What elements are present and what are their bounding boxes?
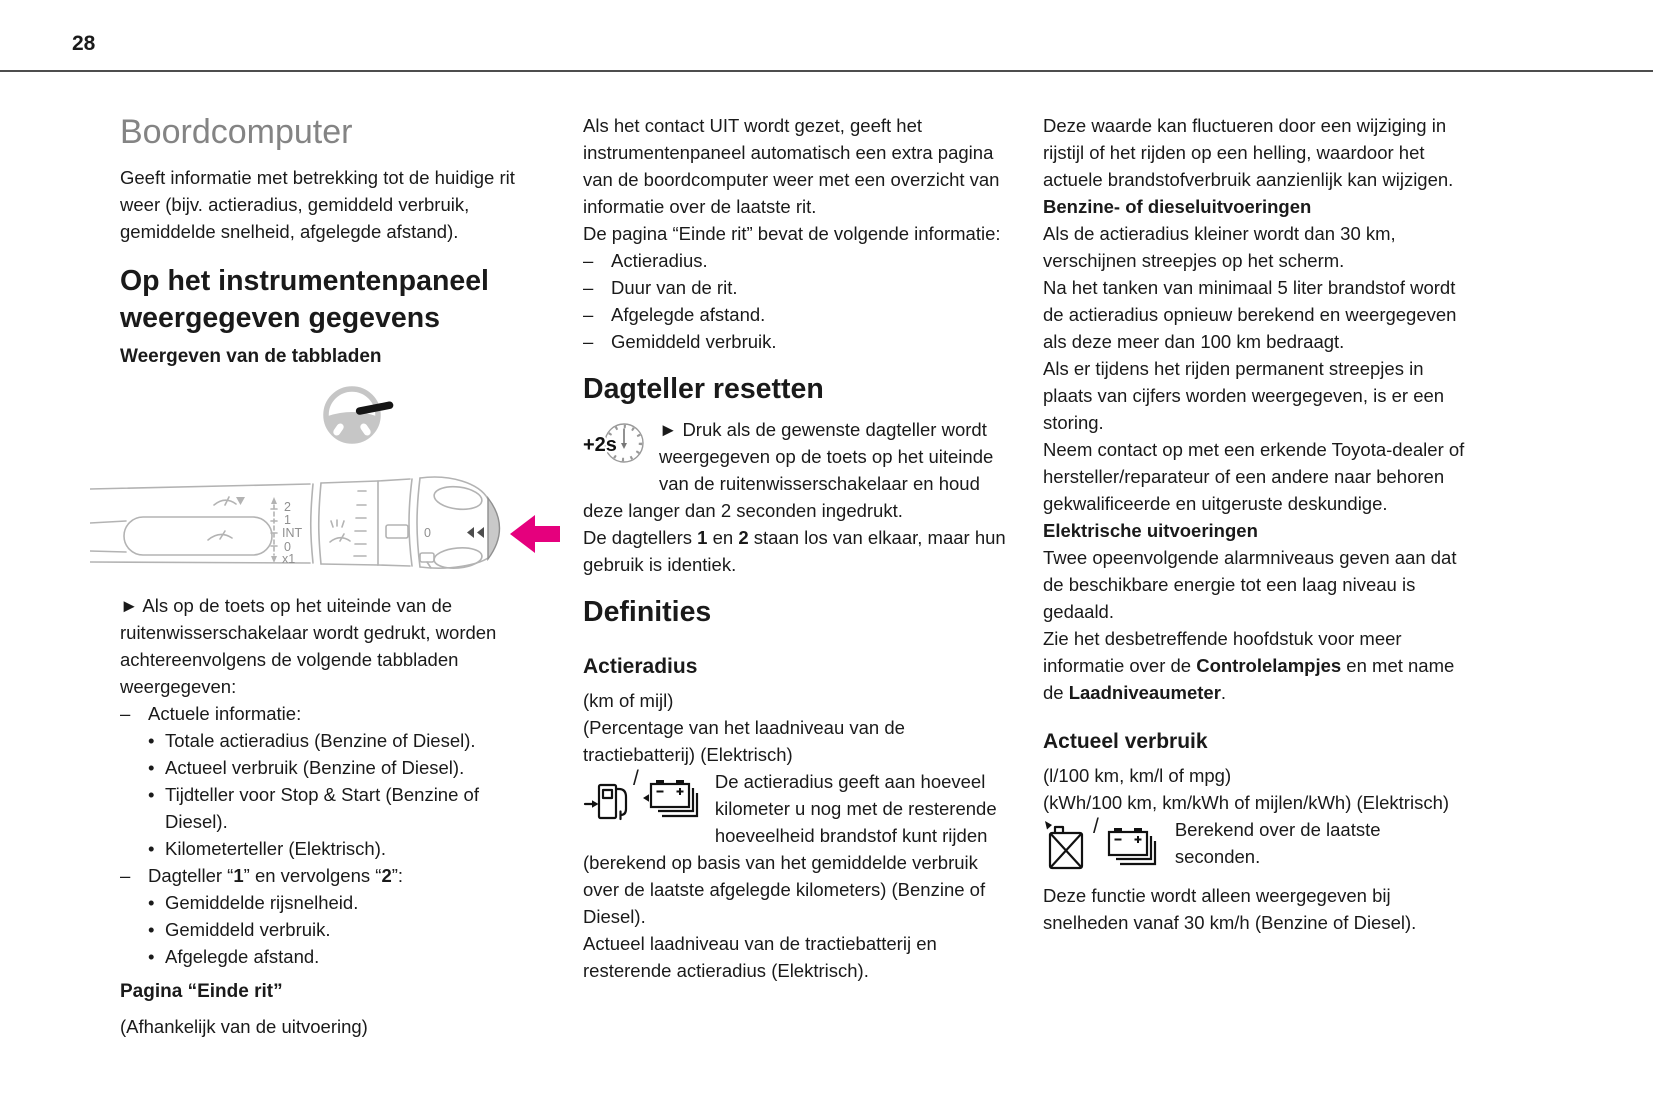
subheading-tabbladen: Weergeven van de tabbladen bbox=[120, 345, 542, 369]
double-left-arrow-icon bbox=[467, 527, 474, 538]
stalk-end-button bbox=[488, 498, 500, 559]
verbruik-unit1: (l/100 km, km/l of mpg) bbox=[1043, 762, 1471, 789]
dash-marker: – bbox=[120, 862, 148, 889]
traction-battery-icon bbox=[1103, 820, 1161, 868]
heading-dagteller-resetten: Dagteller resetten bbox=[583, 371, 1017, 408]
einde-rit-intro: De pagina “Einde rit” bevat de volgende … bbox=[583, 220, 1017, 247]
list-item: – Gemiddeld verbruik. bbox=[583, 328, 1017, 355]
chapter-title: Boordcomputer bbox=[120, 112, 542, 152]
intro-paragraph: Geeft informatie met betrekking tot de h… bbox=[120, 164, 542, 245]
dash-marker: – bbox=[583, 328, 611, 355]
fluctuation-paragraph: Deze waarde kan fluctueren door een wijz… bbox=[1043, 112, 1471, 193]
einde-rit-note: (Afhankelijk van de uitvoering) bbox=[120, 1013, 542, 1040]
subheading-benzine-diesel: Benzine- of dieseluitvoeringen bbox=[1043, 193, 1471, 220]
wiper-stalk-diagram: 2 1 INT 0 x1 0 bbox=[90, 461, 542, 576]
slash-separator: / bbox=[633, 768, 639, 789]
fuel-battery-icons: / bbox=[583, 772, 701, 826]
list-item: – Dagteller “1” en vervolgens “2”: bbox=[120, 862, 542, 889]
bullet-marker: • bbox=[148, 835, 165, 862]
pointer-arrow bbox=[510, 515, 560, 553]
alarmniveaus-paragraph: Twee opeenvolgende alarmniveaus geven aa… bbox=[1043, 544, 1471, 625]
dash-marker: – bbox=[583, 247, 611, 274]
page-number: 28 bbox=[72, 32, 95, 56]
list-item: • Kilometerteller (Elektrisch). bbox=[120, 835, 542, 862]
bullet-marker: • bbox=[148, 889, 165, 916]
bullet-marker: • bbox=[148, 943, 165, 970]
fuelcan-battery-icons: / bbox=[1043, 820, 1161, 874]
tanken-paragraph: Na het tanken van minimaal 5 liter brand… bbox=[1043, 274, 1471, 355]
stalk-label-2: 2 bbox=[284, 500, 291, 514]
stalk-label-1: 1 bbox=[284, 513, 291, 527]
list-item: • Gemiddeld verbruik. bbox=[120, 916, 542, 943]
storing-paragraph: Als er tijdens het rijden permanent stre… bbox=[1043, 355, 1471, 436]
wiper-down-arrow bbox=[236, 497, 245, 505]
einde-rit-heading: Pagina “Einde rit” bbox=[120, 980, 542, 1003]
section-heading-instrumentenpaneel: Op het instrumentenpaneel weergegeven ge… bbox=[120, 263, 542, 337]
press-2s-icon: +2s bbox=[583, 418, 647, 473]
column-right: Deze waarde kan fluctueren door een wijz… bbox=[1043, 112, 1471, 936]
list-item: • Gemiddelde rijsnelheid. bbox=[120, 889, 542, 916]
reset-note: De dagtellers 1 en 2 staan los van elkaa… bbox=[583, 524, 1017, 578]
actieradius-definition-block: / bbox=[583, 768, 1017, 930]
list-item: – Actuele informatie: bbox=[120, 700, 542, 727]
subheading-elektrisch: Elektrische uitvoeringen bbox=[1043, 517, 1471, 544]
contact-uit-paragraph: Als het contact UIT wordt gezet, geeft h… bbox=[583, 112, 1017, 220]
list-item: • Actueel verbruik (Benzine of Diesel). bbox=[120, 754, 542, 781]
fuel-can-icon bbox=[1043, 820, 1089, 874]
list-item: • Afgelegde afstand. bbox=[120, 943, 542, 970]
verbruik-definition-block: / bbox=[1043, 816, 1471, 870]
controlelampjes-paragraph: Zie het desbetreffende hoofdstuk voor me… bbox=[1043, 625, 1471, 706]
bullet-marker: • bbox=[148, 727, 165, 754]
ring-label-0: 0 bbox=[424, 526, 431, 540]
column-middle: Als het contact UIT wordt gezet, geeft h… bbox=[583, 112, 1017, 984]
dash-marker: – bbox=[120, 700, 148, 727]
list-item: – Actieradius. bbox=[583, 247, 1017, 274]
streepjes-paragraph: Als de actieradius kleiner wordt dan 30 … bbox=[1043, 220, 1471, 274]
stalk-illustration: 2 1 INT 0 x1 0 bbox=[120, 383, 542, 576]
verbruik-unit2: (kWh/100 km, km/kWh of mijlen/kWh) (Elek… bbox=[1043, 789, 1471, 816]
actieradius-unit2: (Percentage van het laadniveau van de tr… bbox=[583, 714, 1017, 768]
dash-marker: – bbox=[583, 301, 611, 328]
heading-actueel-verbruik: Actueel verbruik bbox=[1043, 730, 1471, 754]
heading-definities: Definities bbox=[583, 594, 1017, 631]
column-left: Boordcomputer Geeft informatie met betre… bbox=[120, 112, 542, 1040]
heading-actieradius: Actieradius bbox=[583, 655, 1017, 679]
steering-wheel-icon bbox=[318, 383, 542, 447]
stalk-label-x1: x1 bbox=[282, 552, 295, 566]
traction-battery-icon bbox=[643, 772, 701, 820]
slash-separator: / bbox=[1093, 816, 1099, 837]
bullet-marker: • bbox=[148, 916, 165, 943]
actieradius-definition-electric: Actueel laadniveau van de tractiebatteri… bbox=[583, 930, 1017, 984]
bullet-marker: • bbox=[148, 754, 165, 781]
list-item: – Duur van de rit. bbox=[583, 274, 1017, 301]
header-rule bbox=[0, 70, 1653, 72]
list-item: • Tijdteller voor Stop & Start (Benzine … bbox=[120, 781, 542, 835]
actieradius-unit1: (km of mijl) bbox=[583, 687, 1017, 714]
reset-instruction-block: +2s ► Druk als de gewenste dagteller wor… bbox=[583, 416, 1017, 524]
dealer-paragraph: Neem contact op met een erkende Toyota-d… bbox=[1043, 436, 1471, 517]
stalk-label-int: INT bbox=[282, 526, 303, 540]
plus-2s-label: +2s bbox=[583, 434, 617, 456]
fuel-pump-icon bbox=[583, 772, 629, 826]
bullet-marker: • bbox=[148, 781, 165, 835]
list-item: • Totale actieradius (Benzine of Diesel)… bbox=[120, 727, 542, 754]
manual-page: 28 Boordcomputer Geeft informatie met be… bbox=[0, 0, 1653, 1102]
reset-instruction: ► Druk als de gewenste dagteller wordt w… bbox=[583, 416, 1017, 524]
snelheden-paragraph: Deze functie wordt alleen weergegeven bi… bbox=[1043, 882, 1471, 936]
list-item: – Afgelegde afstand. bbox=[583, 301, 1017, 328]
dash-marker: – bbox=[583, 274, 611, 301]
stalk-instruction: ► Als op de toets op het uiteinde van de… bbox=[120, 592, 542, 700]
